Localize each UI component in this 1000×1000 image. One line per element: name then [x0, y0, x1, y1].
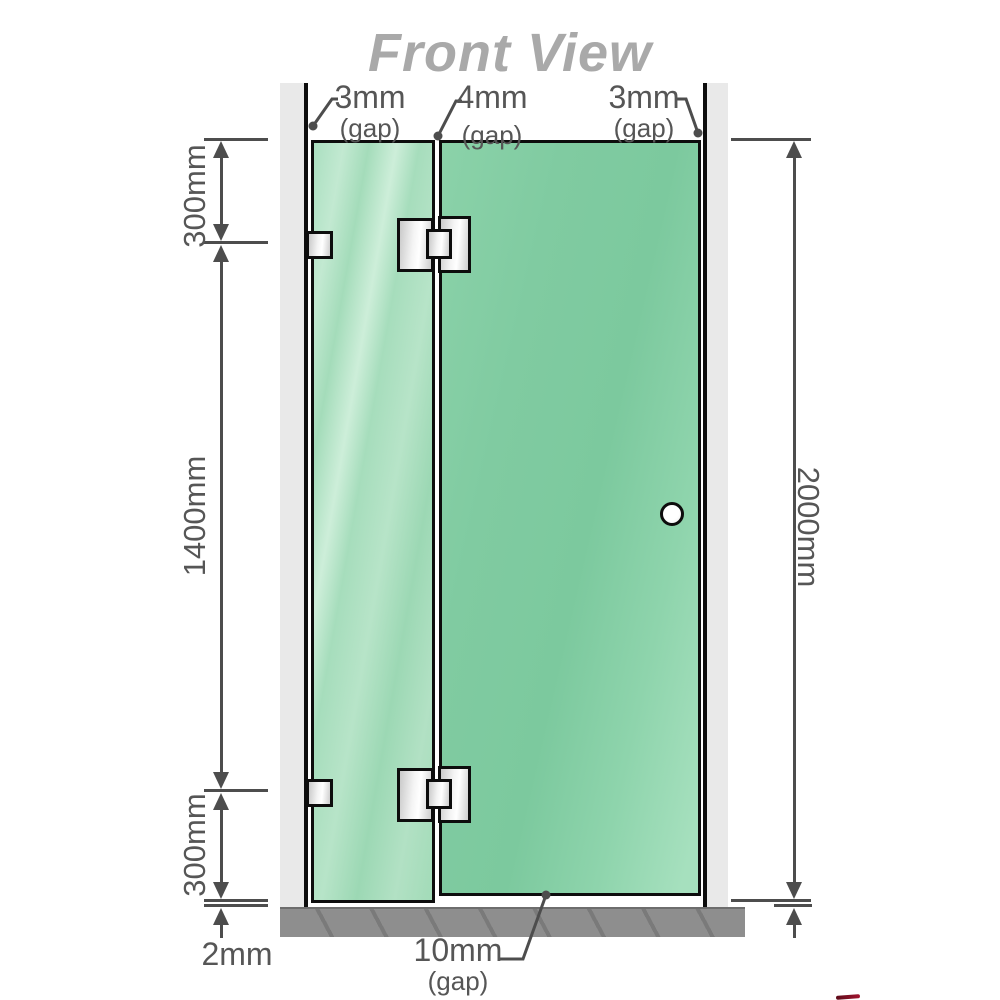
gap-value: 3mm [604, 81, 684, 115]
red-logo-fragment [836, 994, 860, 1000]
dim-label-300-top: 300mm [177, 144, 213, 247]
page-title: Front View [368, 22, 652, 84]
hinge-top-tab-icon [426, 229, 452, 259]
dim-line-300-top [212, 141, 230, 241]
gap-suffix: (gap) [410, 968, 506, 995]
wall-bracket-bottom-icon [306, 779, 333, 807]
gap-label-top-left: 3mm (gap) [330, 81, 410, 142]
tick [204, 899, 268, 902]
gap-value: 4mm [450, 81, 534, 115]
dim-line-2mm-left [212, 908, 230, 938]
floor-bar [280, 907, 745, 937]
gap-suffix: (gap) [604, 115, 684, 142]
tick [731, 899, 811, 902]
dim-label-2000: 2000mm [790, 467, 826, 588]
gap-suffix: (gap) [330, 115, 410, 142]
tick [204, 789, 268, 792]
dim-line-2mm-right [785, 908, 803, 938]
tick [204, 904, 268, 907]
gap-label-top-middle: 4mm (gap) [450, 81, 534, 149]
gap-value: 3mm [330, 81, 410, 115]
hinge-bottom-tab-icon [426, 779, 452, 809]
tick [774, 904, 812, 907]
front-view-diagram: Front View 300mm [0, 0, 1000, 1000]
gap-label-top-right: 3mm (gap) [604, 81, 684, 142]
tick [204, 241, 268, 244]
gap-suffix: (gap) [450, 122, 534, 149]
dim-line-300-bottom [212, 793, 230, 899]
door-knob-icon [660, 502, 684, 526]
right-wall [703, 83, 728, 907]
left-wall [280, 83, 308, 907]
gap-value: 10mm [410, 934, 506, 968]
dim-label-300-bottom: 300mm [177, 793, 213, 896]
dim-label-1400: 1400mm [177, 456, 213, 577]
gap-label-bottom: 10mm (gap) [410, 934, 506, 995]
dim-label-2mm: 2mm [200, 936, 274, 973]
dim-line-1400 [212, 245, 230, 789]
wall-bracket-top-icon [306, 231, 333, 259]
